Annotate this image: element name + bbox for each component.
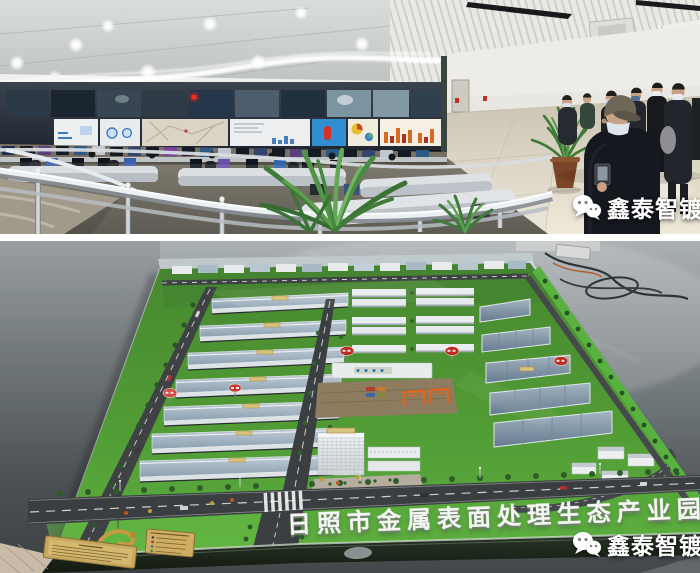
- video-wall-dashboard-row: [54, 119, 442, 146]
- visitor: [692, 98, 700, 160]
- photo-divider: [0, 234, 700, 241]
- door: [452, 80, 469, 112]
- fire-sign: [455, 98, 459, 103]
- industrial-park-model-photo: 日照市金属表面处理生态产业园 鑫泰智镀: [0, 241, 700, 573]
- video-wall-top-row: [6, 90, 445, 117]
- courtyard-complex: [332, 363, 432, 378]
- watermark-text: 鑫泰智镀: [607, 527, 700, 561]
- map-screen: [142, 119, 228, 146]
- video-wall: [0, 82, 447, 154]
- pie-chart-screen: [348, 119, 378, 146]
- carried-coat: [660, 126, 676, 154]
- control-room-photo: 鑫泰智镀: [0, 0, 700, 234]
- fire-sign: [483, 96, 487, 101]
- photo-collage: 鑫泰智镀: [0, 0, 700, 573]
- material-yard-with-cranes: [315, 378, 458, 418]
- tower-gold-sign: [327, 428, 355, 433]
- watermark-text: 鑫泰智镀: [607, 190, 700, 224]
- wechat-icon: [572, 529, 602, 559]
- watermark-bottom: 鑫泰智镀: [572, 527, 700, 561]
- wechat-icon: [572, 192, 602, 222]
- watermark-top: 鑫泰智镀: [572, 190, 700, 224]
- legend-plaque: [145, 529, 195, 557]
